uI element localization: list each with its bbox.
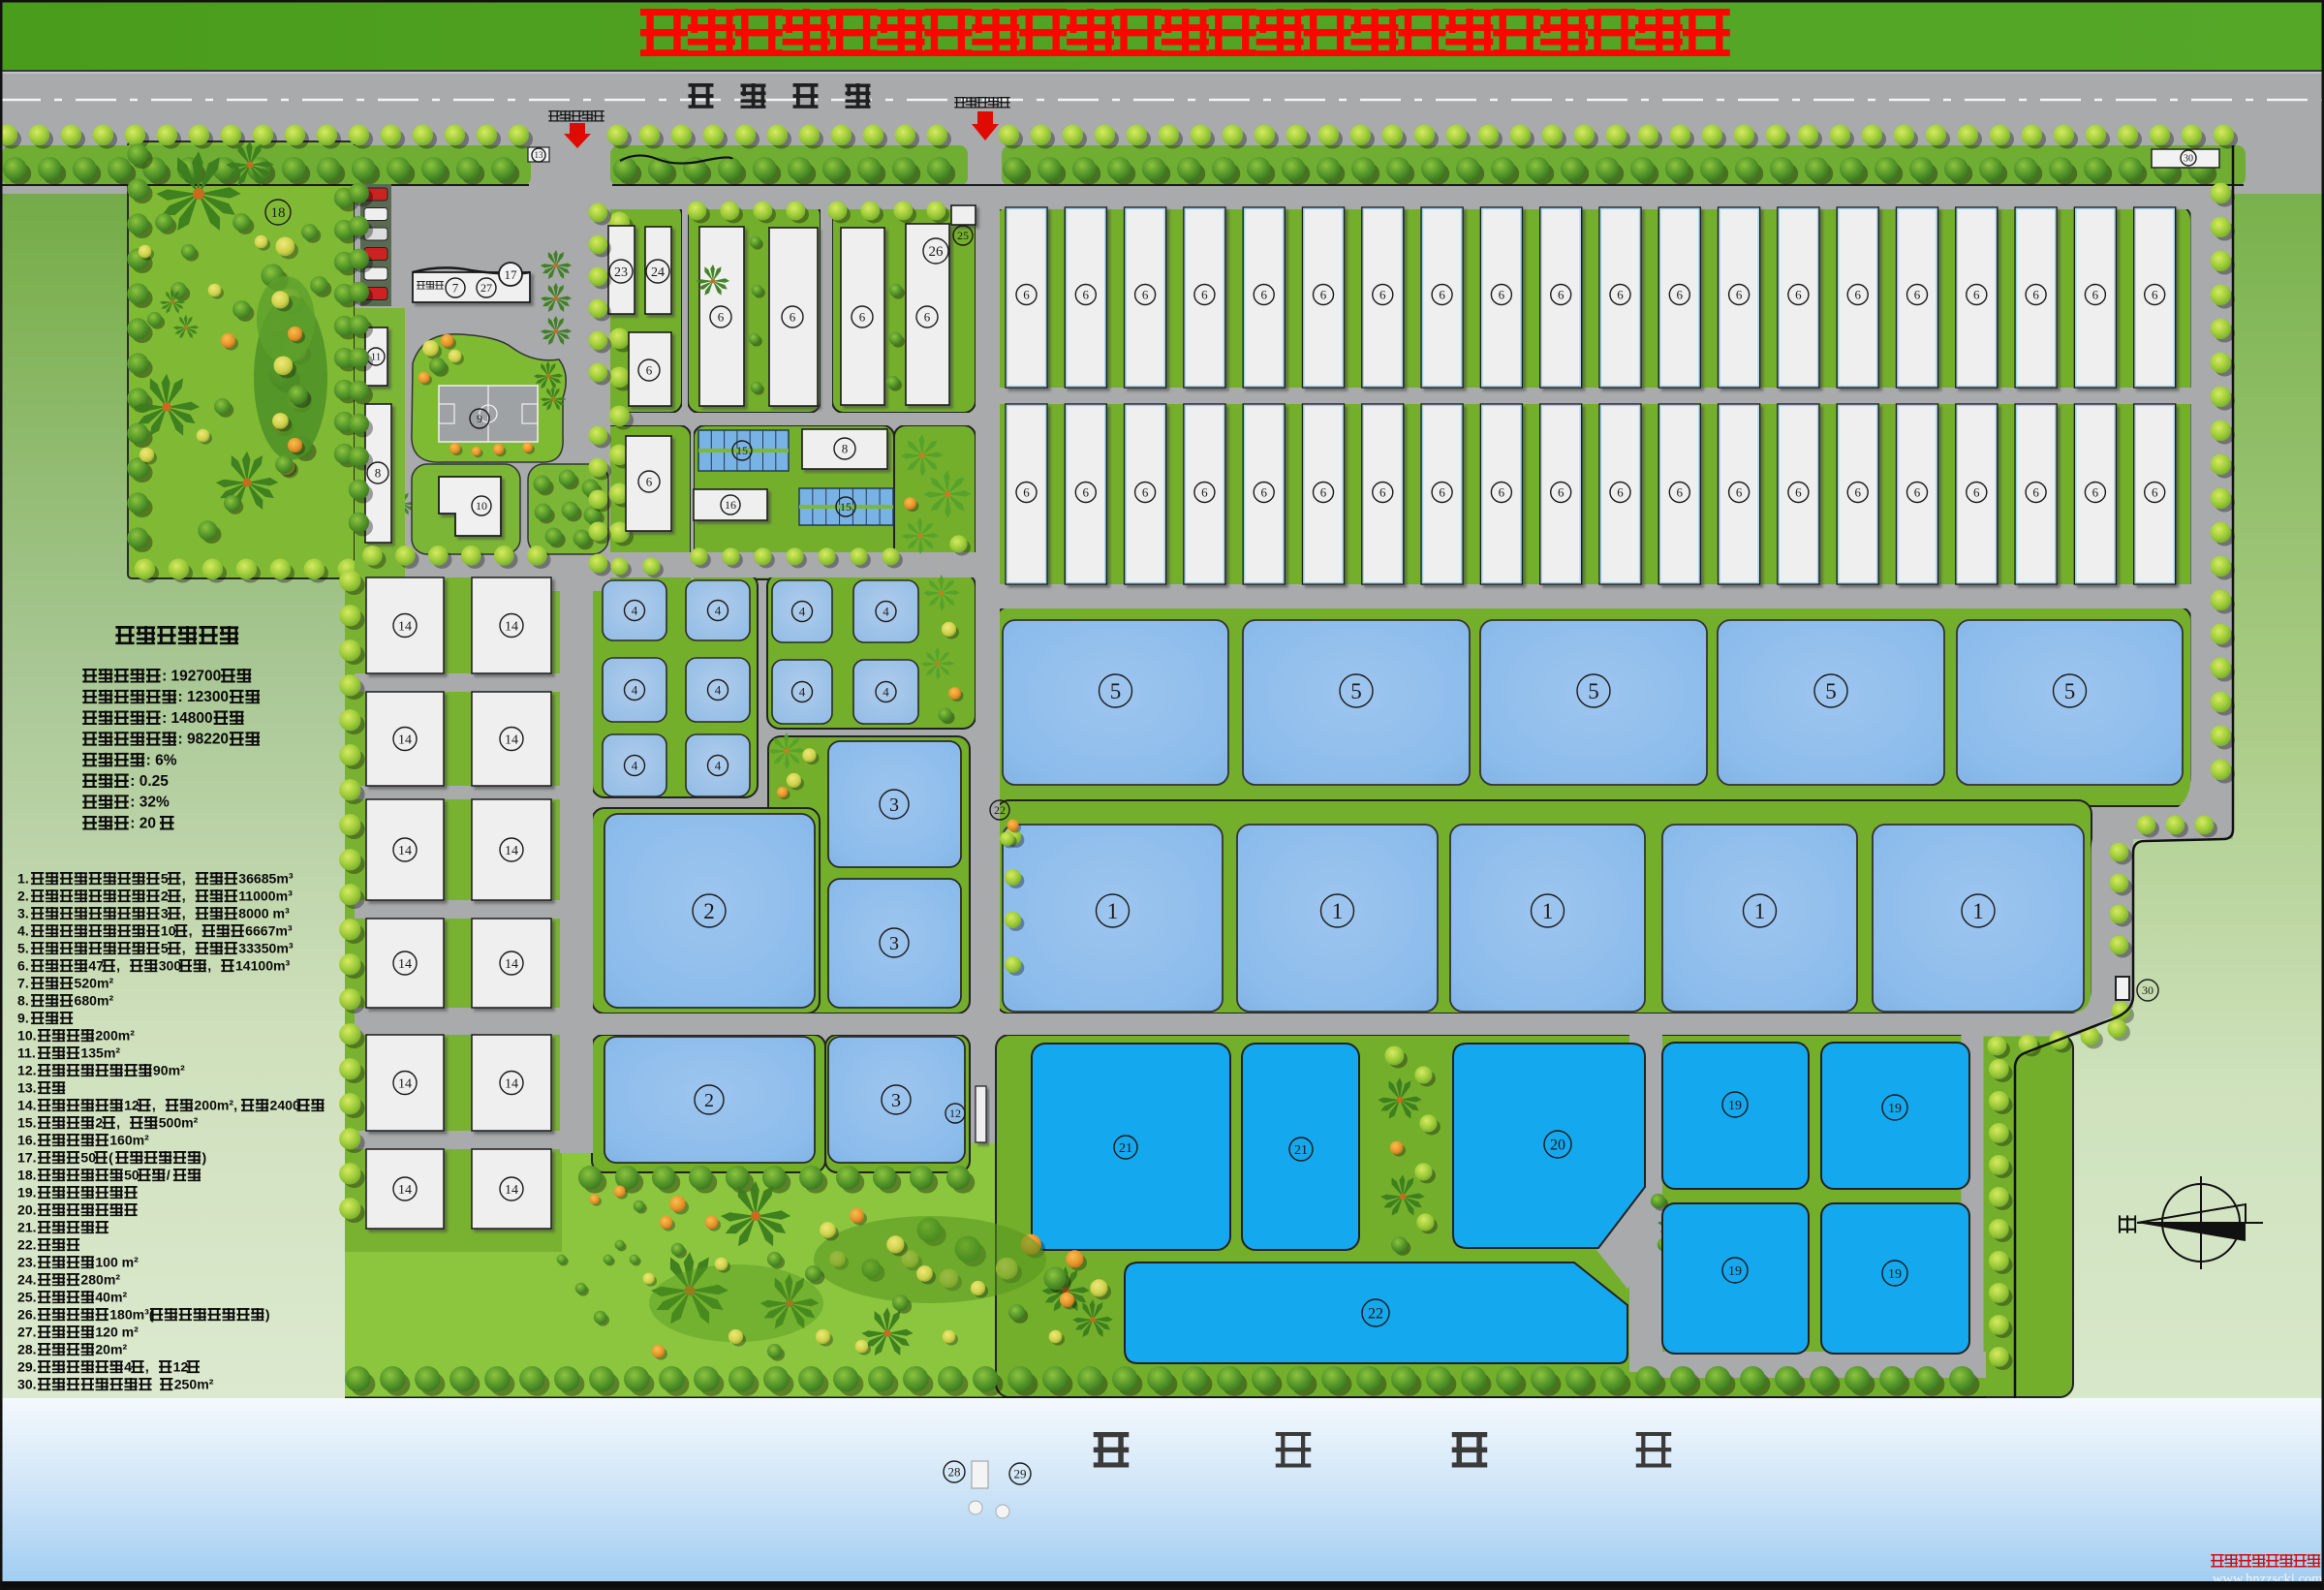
- svg-text:15: 15: [840, 500, 852, 514]
- svg-text:4.: 4.: [17, 922, 29, 938]
- svg-text:500m²: 500m²: [159, 1114, 199, 1130]
- svg-text:1: 1: [1754, 899, 1766, 923]
- svg-text:680m²: 680m²: [75, 992, 114, 1008]
- svg-text:6: 6: [1677, 484, 1684, 499]
- svg-text:14: 14: [505, 957, 518, 972]
- svg-text:4: 4: [632, 758, 638, 772]
- svg-text:8: 8: [375, 465, 382, 480]
- svg-text:6: 6: [1320, 484, 1327, 499]
- svg-text:16.: 16.: [17, 1132, 37, 1147]
- svg-text:6: 6: [1973, 484, 1980, 499]
- svg-text:180m³(: 180m³(: [109, 1306, 154, 1322]
- svg-text:,: ,: [116, 1114, 120, 1130]
- svg-text:,: ,: [182, 870, 186, 886]
- svg-text:1.: 1.: [17, 870, 29, 886]
- svg-text:14: 14: [398, 844, 412, 858]
- svg-text:6: 6: [1142, 484, 1149, 499]
- svg-text:120 m²: 120 m²: [95, 1324, 139, 1339]
- svg-text:,: ,: [189, 922, 193, 938]
- svg-text:6: 6: [1379, 287, 1386, 301]
- svg-text:6: 6: [1083, 484, 1090, 499]
- svg-text:5: 5: [161, 940, 169, 955]
- svg-text:4: 4: [632, 682, 638, 697]
- svg-text:40m²: 40m²: [95, 1289, 127, 1304]
- svg-text:20m²: 20m²: [95, 1341, 127, 1356]
- svg-text:6: 6: [1677, 287, 1684, 301]
- svg-text:8000 m³: 8000 m³: [238, 905, 290, 920]
- svg-text:14: 14: [505, 619, 518, 634]
- svg-text:13: 13: [535, 150, 544, 160]
- svg-text:2: 2: [704, 1090, 714, 1111]
- svg-text:6: 6: [1201, 287, 1208, 301]
- svg-text:2: 2: [703, 899, 715, 923]
- svg-text:13.: 13.: [17, 1079, 37, 1095]
- svg-text:5: 5: [1350, 679, 1362, 703]
- svg-text:6: 6: [1379, 484, 1386, 499]
- svg-text:1: 1: [1542, 899, 1554, 923]
- svg-text:4: 4: [632, 603, 638, 617]
- svg-text:7: 7: [452, 280, 459, 295]
- svg-text:,: ,: [207, 957, 211, 973]
- svg-text:1: 1: [1107, 899, 1119, 923]
- svg-text:50: 50: [80, 1149, 96, 1165]
- svg-text:2: 2: [95, 1114, 103, 1130]
- svg-text:5: 5: [2064, 679, 2076, 703]
- svg-text:8.: 8.: [17, 992, 29, 1008]
- svg-text:3.: 3.: [17, 905, 29, 920]
- svg-text:135m²: 135m²: [80, 1044, 120, 1060]
- svg-text:6: 6: [1201, 484, 1208, 499]
- svg-text:14: 14: [398, 957, 412, 972]
- svg-text:36685m³: 36685m³: [238, 870, 294, 886]
- svg-text:2.: 2.: [17, 888, 29, 903]
- svg-text:): ): [201, 1149, 206, 1165]
- svg-text:,: ,: [182, 905, 186, 920]
- svg-text:30.: 30.: [17, 1376, 37, 1391]
- svg-text:6: 6: [1499, 287, 1505, 301]
- svg-text:14100m³: 14100m³: [235, 957, 291, 973]
- svg-text:6: 6: [2032, 484, 2039, 499]
- svg-text:17.: 17.: [17, 1149, 37, 1165]
- svg-text:6: 6: [1558, 484, 1565, 499]
- svg-text:6: 6: [1260, 287, 1267, 301]
- svg-text:6: 6: [1914, 287, 1921, 301]
- svg-text:33350m³: 33350m³: [238, 940, 294, 955]
- svg-text:11000m³: 11000m³: [238, 888, 293, 903]
- svg-text:6: 6: [1023, 484, 1030, 499]
- svg-text:26: 26: [929, 244, 945, 260]
- svg-text:4: 4: [883, 684, 889, 699]
- svg-text:23.: 23.: [17, 1254, 37, 1269]
- svg-text:,: ,: [182, 940, 186, 955]
- svg-text:6: 6: [1854, 287, 1861, 301]
- svg-text:6: 6: [1617, 287, 1624, 301]
- svg-text:12: 12: [173, 1358, 189, 1374]
- svg-text:27: 27: [480, 281, 492, 295]
- svg-text:,: ,: [182, 888, 186, 903]
- svg-text:29.: 29.: [17, 1358, 37, 1374]
- svg-text:14: 14: [398, 1076, 412, 1091]
- svg-text:18.: 18.: [17, 1167, 37, 1182]
- svg-text:25.: 25.: [17, 1289, 37, 1304]
- svg-text:14: 14: [505, 733, 518, 747]
- svg-text:6: 6: [2092, 287, 2099, 301]
- svg-text:6: 6: [1736, 287, 1743, 301]
- svg-text:6: 6: [2032, 287, 2039, 301]
- svg-text:29: 29: [1014, 1466, 1027, 1481]
- svg-text:21: 21: [1294, 1143, 1308, 1158]
- svg-text:28.: 28.: [17, 1341, 37, 1356]
- svg-text:12: 12: [949, 1107, 961, 1120]
- svg-text:6: 6: [790, 309, 796, 324]
- svg-text:2400: 2400: [270, 1097, 300, 1112]
- svg-text:100 m²: 100 m²: [95, 1254, 139, 1269]
- svg-text:6: 6: [2152, 287, 2158, 301]
- svg-text:3: 3: [161, 905, 169, 920]
- svg-text:5: 5: [1825, 679, 1837, 703]
- svg-text:6: 6: [1973, 287, 1980, 301]
- svg-text:200m²: 200m²: [95, 1027, 135, 1043]
- svg-text:11.: 11.: [17, 1044, 36, 1060]
- svg-text:26.: 26.: [17, 1306, 37, 1322]
- svg-text:23: 23: [614, 265, 628, 280]
- svg-text:19.: 19.: [17, 1184, 37, 1200]
- svg-text:250m²: 250m²: [174, 1376, 214, 1391]
- svg-text:17: 17: [505, 267, 518, 282]
- svg-text:24.: 24.: [17, 1271, 37, 1287]
- svg-text:4: 4: [715, 758, 722, 772]
- svg-text:5: 5: [1588, 679, 1599, 703]
- svg-text:,: ,: [116, 957, 120, 973]
- svg-text:14: 14: [505, 1076, 518, 1091]
- svg-text:22: 22: [994, 803, 1006, 817]
- svg-text:4: 4: [799, 684, 806, 699]
- svg-text:14: 14: [398, 1183, 412, 1198]
- svg-text:18: 18: [271, 205, 286, 221]
- svg-text:200m²,: 200m²,: [194, 1097, 237, 1112]
- svg-text:6: 6: [924, 309, 931, 324]
- svg-text:3: 3: [889, 933, 899, 954]
- svg-text:5: 5: [161, 870, 169, 886]
- svg-text:14: 14: [505, 1183, 518, 1198]
- svg-text:5: 5: [1110, 679, 1122, 703]
- svg-text:2: 2: [161, 888, 169, 903]
- svg-text:: 32%: : 32%: [130, 795, 170, 811]
- svg-text:27.: 27.: [17, 1324, 37, 1339]
- svg-text:4: 4: [715, 682, 722, 697]
- svg-text:19: 19: [1728, 1099, 1742, 1113]
- svg-text:6667m³: 6667m³: [245, 922, 293, 938]
- svg-text:: 20: : 20: [130, 815, 156, 831]
- svg-text:47: 47: [88, 957, 104, 973]
- svg-text:6: 6: [1439, 484, 1445, 499]
- svg-text:6: 6: [1558, 287, 1565, 301]
- svg-text:6: 6: [1914, 484, 1921, 499]
- svg-text:14: 14: [505, 844, 518, 858]
- svg-text:: 98220: : 98220: [177, 732, 229, 748]
- svg-text:19: 19: [1888, 1267, 1902, 1282]
- svg-text:6: 6: [646, 474, 653, 488]
- svg-text:6: 6: [1260, 484, 1267, 499]
- svg-text:6: 6: [1795, 484, 1802, 499]
- svg-text:520m²: 520m²: [75, 975, 114, 990]
- svg-text:): ): [265, 1306, 270, 1322]
- svg-text:90m²: 90m²: [153, 1062, 185, 1077]
- svg-text:6: 6: [1439, 287, 1445, 301]
- svg-text:6: 6: [2092, 484, 2099, 499]
- svg-text:,: ,: [152, 1097, 156, 1112]
- svg-text:4: 4: [124, 1358, 132, 1374]
- svg-text:300: 300: [159, 957, 182, 973]
- svg-text:4: 4: [883, 604, 889, 618]
- svg-text:1: 1: [1332, 899, 1344, 923]
- svg-text:6: 6: [859, 309, 866, 324]
- svg-text:280m²: 280m²: [80, 1271, 120, 1287]
- svg-text:8: 8: [842, 441, 849, 455]
- svg-text:20: 20: [1550, 1137, 1565, 1153]
- svg-text:14: 14: [398, 619, 412, 634]
- svg-text:22: 22: [1368, 1305, 1383, 1322]
- svg-text:21: 21: [1119, 1141, 1132, 1156]
- svg-text:16: 16: [725, 498, 736, 512]
- svg-text:14: 14: [398, 733, 412, 747]
- svg-text:1: 1: [1972, 899, 1984, 923]
- svg-text:6: 6: [1617, 484, 1624, 499]
- svg-text:9.: 9.: [17, 1010, 29, 1025]
- svg-text:15.: 15.: [17, 1114, 37, 1130]
- svg-text:50: 50: [124, 1167, 139, 1182]
- svg-text:12.: 12.: [17, 1062, 37, 1077]
- svg-text:/: /: [167, 1167, 170, 1182]
- svg-text:10.: 10.: [17, 1027, 37, 1043]
- svg-text:5.: 5.: [17, 940, 29, 955]
- svg-text:6: 6: [646, 362, 653, 377]
- svg-text:9: 9: [477, 412, 482, 425]
- svg-text:7.: 7.: [17, 975, 29, 990]
- svg-text:6: 6: [1083, 287, 1090, 301]
- svg-text:6: 6: [1142, 287, 1149, 301]
- svg-text:(: (: [108, 1149, 113, 1165]
- svg-text:3: 3: [891, 1090, 901, 1111]
- svg-text:28: 28: [948, 1464, 961, 1479]
- svg-text:15: 15: [736, 444, 748, 457]
- svg-text:6: 6: [1499, 484, 1505, 499]
- svg-text:160m²: 160m²: [109, 1132, 149, 1147]
- svg-text:6: 6: [718, 309, 725, 324]
- svg-text:3: 3: [889, 795, 899, 816]
- svg-text:6: 6: [1854, 484, 1861, 499]
- svg-text:6.: 6.: [17, 957, 29, 973]
- svg-text:6: 6: [2152, 484, 2158, 499]
- svg-text:10: 10: [476, 499, 487, 513]
- svg-text:30: 30: [2142, 983, 2154, 997]
- svg-text:20.: 20.: [17, 1201, 37, 1217]
- svg-text:4: 4: [715, 603, 722, 617]
- svg-text:25: 25: [957, 229, 969, 242]
- svg-text:22.: 22.: [17, 1236, 37, 1252]
- svg-text:10: 10: [161, 922, 176, 938]
- svg-text:6: 6: [1320, 287, 1327, 301]
- svg-text:21.: 21.: [17, 1219, 37, 1234]
- svg-text:12: 12: [124, 1097, 139, 1112]
- svg-text:6: 6: [1023, 287, 1030, 301]
- svg-text:14.: 14.: [17, 1097, 37, 1112]
- svg-text:6: 6: [1795, 287, 1802, 301]
- svg-text:24: 24: [651, 265, 665, 280]
- svg-text:: 192700: : 192700: [162, 668, 221, 684]
- svg-text:,: ,: [145, 1358, 149, 1374]
- svg-text:: 14800: : 14800: [162, 710, 213, 727]
- svg-text:19: 19: [1728, 1264, 1742, 1279]
- svg-text:19: 19: [1888, 1102, 1902, 1116]
- svg-text:: 12300: : 12300: [177, 689, 229, 705]
- svg-text:4: 4: [799, 604, 806, 618]
- svg-text:: 0.25: : 0.25: [130, 773, 169, 790]
- svg-text:: 6%: : 6%: [146, 752, 177, 768]
- svg-text:30: 30: [2184, 153, 2193, 164]
- svg-text:6: 6: [1736, 484, 1743, 499]
